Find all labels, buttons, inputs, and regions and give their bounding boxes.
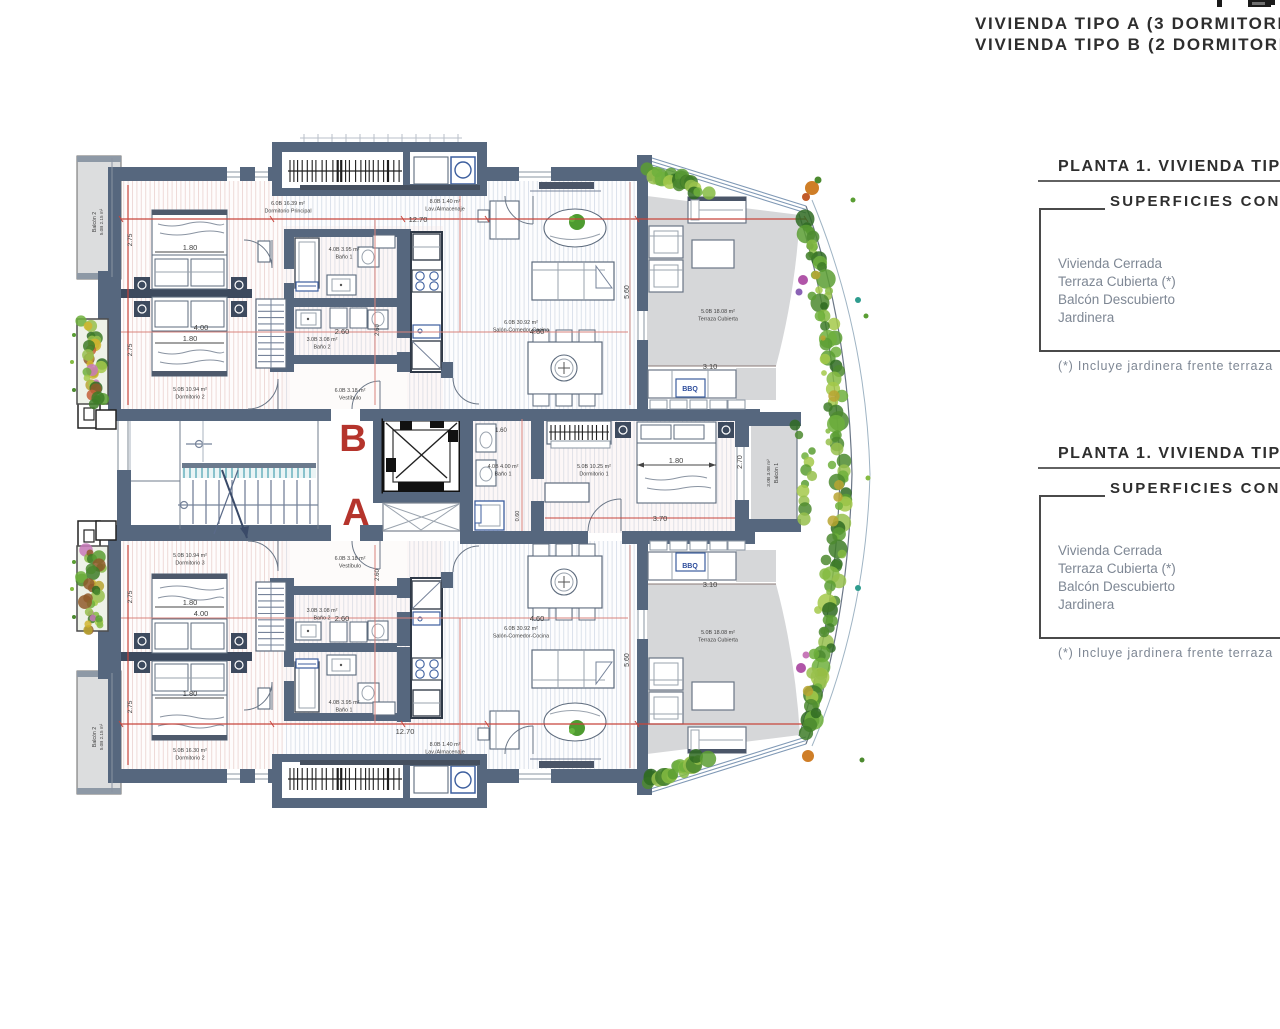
svg-text:(*) Incluye jardinera frente t: (*) Incluye jardinera frente terraza	[1058, 646, 1273, 660]
svg-text:BBQ: BBQ	[682, 386, 698, 393]
svg-text:1.80: 1.80	[183, 689, 198, 698]
svg-text:(*) Incluye jardinera frente t: (*) Incluye jardinera frente terraza	[1058, 359, 1273, 373]
svg-text:Baño 1: Baño 1	[494, 472, 511, 478]
svg-text:4.0B 4.00 m²: 4.0B 4.00 m²	[488, 464, 519, 470]
svg-text:PLANTA 1. VIVIENDA TIPO A: PLANTA 1. VIVIENDA TIPO A	[1058, 445, 1280, 462]
svg-text:4.0B 3.95 m²: 4.0B 3.95 m²	[329, 247, 360, 253]
svg-text:5.60: 5.60	[624, 653, 631, 667]
svg-text:5.0B 10.25 m²: 5.0B 10.25 m²	[577, 464, 611, 470]
svg-text:5.0B 10.94 m²: 5.0B 10.94 m²	[173, 387, 207, 393]
svg-text:Dormitorio Principal: Dormitorio Principal	[264, 209, 311, 215]
svg-text:B: B	[339, 418, 366, 460]
svg-text:2.75: 2.75	[127, 700, 134, 713]
svg-text:6.0B 30.92 m²: 6.0B 30.92 m²	[504, 626, 538, 632]
svg-text:5.0B 2.15 m²: 5.0B 2.15 m²	[99, 723, 104, 750]
svg-text:6.0B 16.39 m²: 6.0B 16.39 m²	[271, 201, 305, 207]
svg-text:Terraza Cubierta: Terraza Cubierta	[698, 638, 738, 644]
svg-text:Terraza Cubierta (*): Terraza Cubierta (*)	[1058, 274, 1176, 289]
svg-text:1.80: 1.80	[183, 334, 198, 343]
svg-text:Balcón 1: Balcón 1	[774, 463, 780, 483]
svg-text:Terraza Cubierta (*): Terraza Cubierta (*)	[1058, 561, 1176, 576]
svg-text:2.60: 2.60	[335, 614, 350, 623]
svg-text:Vivienda Cerrada: Vivienda Cerrada	[1058, 256, 1163, 271]
svg-text:Balcón Descubierto: Balcón Descubierto	[1058, 292, 1175, 307]
svg-text:12.70: 12.70	[409, 215, 428, 224]
svg-text:Jardinera: Jardinera	[1058, 310, 1115, 325]
svg-text:2.60: 2.60	[335, 327, 350, 336]
svg-text:BBQ: BBQ	[682, 563, 698, 570]
svg-text:Lav./Almacenaje: Lav./Almacenaje	[425, 207, 464, 213]
svg-text:Dormitorio 3: Dormitorio 3	[175, 561, 204, 567]
svg-text:5.0B 2.15 m²: 5.0B 2.15 m²	[99, 208, 104, 235]
svg-text:Dormitorio 2: Dormitorio 2	[175, 395, 204, 401]
svg-text:4.0B 3.95 m²: 4.0B 3.95 m²	[329, 700, 360, 706]
svg-text:PLANTA 1. VIVIENDA TIPO A: PLANTA 1. VIVIENDA TIPO A	[1058, 158, 1280, 175]
svg-text:2.75: 2.75	[127, 590, 134, 603]
svg-text:2.75: 2.75	[127, 233, 134, 246]
svg-text:3.70: 3.70	[653, 514, 668, 523]
svg-text:6.0B 3.18 m²: 6.0B 3.18 m²	[335, 556, 366, 562]
svg-text:4.60: 4.60	[530, 327, 545, 336]
svg-text:Baño 1: Baño 1	[335, 255, 352, 261]
svg-text:Dormitorio 1: Dormitorio 1	[579, 472, 608, 478]
svg-text:3.0B 3.08 m²: 3.0B 3.08 m²	[766, 459, 772, 487]
svg-text:3.10: 3.10	[703, 580, 718, 589]
svg-text:SUPERFICIES CONSTRUIDAS: SUPERFICIES CONSTRUIDAS	[1110, 480, 1280, 497]
svg-text:2.70: 2.70	[737, 455, 744, 469]
svg-text:3.0B 3.08 m²: 3.0B 3.08 m²	[307, 608, 338, 614]
svg-text:4.60: 4.60	[530, 614, 545, 623]
svg-text:Baño 1: Baño 1	[335, 708, 352, 714]
svg-text:Vestíbulo: Vestíbulo	[339, 564, 361, 570]
svg-text:SUPERFICIES CONSTRUIDAS: SUPERFICIES CONSTRUIDAS	[1110, 193, 1280, 210]
svg-text:A: A	[342, 492, 369, 534]
svg-text:1.80: 1.80	[183, 243, 198, 252]
svg-text:5.60: 5.60	[624, 285, 631, 299]
svg-text:1.80: 1.80	[183, 598, 198, 607]
svg-text:5.0B 16.30 m²: 5.0B 16.30 m²	[173, 748, 207, 754]
svg-text:2.60: 2.60	[375, 324, 381, 336]
svg-text:Jardinera: Jardinera	[1058, 597, 1115, 612]
svg-text:Lav./Almacenaje: Lav./Almacenaje	[425, 750, 464, 756]
svg-text:Salón-Comedor-Cocina: Salón-Comedor-Cocina	[493, 634, 549, 640]
svg-text:Balcón 2: Balcón 2	[92, 212, 98, 232]
svg-text:4.00: 4.00	[194, 609, 209, 618]
svg-text:2.60: 2.60	[375, 569, 381, 581]
svg-text:VIVIENDA TIPO B (2 DORMITORIOS: VIVIENDA TIPO B (2 DORMITORIOS)	[975, 35, 1280, 54]
svg-text:5.0B 18.08 m²: 5.0B 18.08 m²	[701, 630, 735, 636]
svg-text:5.0B 18.08 m²: 5.0B 18.08 m²	[701, 309, 735, 315]
svg-text:Balcón Descubierto: Balcón Descubierto	[1058, 579, 1175, 594]
svg-text:5.0B 10.94 m²: 5.0B 10.94 m²	[173, 553, 207, 559]
svg-text:Baño 2: Baño 2	[313, 345, 330, 351]
svg-text:1.60: 1.60	[495, 428, 507, 434]
svg-text:0.60: 0.60	[515, 511, 521, 522]
svg-text:1.80: 1.80	[669, 456, 684, 465]
svg-text:3.10: 3.10	[703, 362, 718, 371]
svg-text:Baño 2: Baño 2	[313, 616, 330, 622]
svg-text:3.0B 3.08 m²: 3.0B 3.08 m²	[307, 337, 338, 343]
svg-text:6.0B 30.92 m²: 6.0B 30.92 m²	[504, 320, 538, 326]
svg-text:Dormitorio 2: Dormitorio 2	[175, 756, 204, 762]
svg-text:2.75: 2.75	[127, 343, 134, 356]
svg-text:VIVIENDA TIPO A (3 DORMITORIOS: VIVIENDA TIPO A (3 DORMITORIOS)	[975, 14, 1280, 33]
svg-text:8.0B 1.40 m²: 8.0B 1.40 m²	[430, 742, 461, 748]
svg-text:Terraza Cubierta: Terraza Cubierta	[698, 317, 738, 323]
svg-text:6.0B 3.18 m²: 6.0B 3.18 m²	[335, 388, 366, 394]
svg-text:12.70: 12.70	[396, 727, 415, 736]
svg-text:4.00: 4.00	[194, 323, 209, 332]
svg-text:Vestíbulo: Vestíbulo	[339, 396, 361, 402]
svg-text:Balcón 2: Balcón 2	[92, 727, 98, 747]
svg-text:8.0B 1.40 m²: 8.0B 1.40 m²	[430, 199, 461, 205]
svg-text:Vivienda Cerrada: Vivienda Cerrada	[1058, 543, 1163, 558]
